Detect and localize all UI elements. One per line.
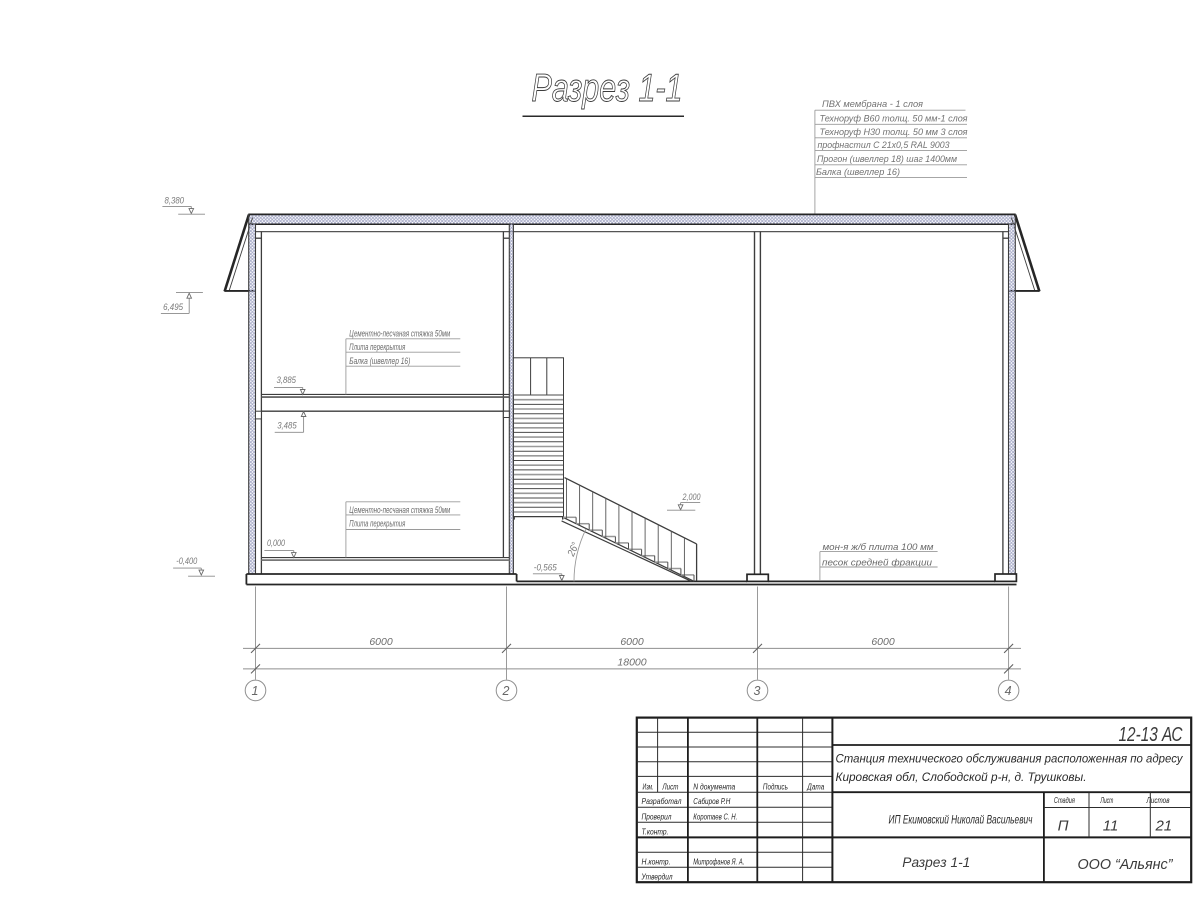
svg-text:Разрез 1-1: Разрез 1-1: [902, 854, 970, 870]
svg-text:3,885: 3,885: [277, 375, 297, 385]
svg-text:Техноруф Н30 толщ. 50 мм 3 сло: Техноруф Н30 толщ. 50 мм 3 слоя: [820, 127, 968, 138]
svg-text:18000: 18000: [617, 657, 646, 669]
svg-text:8,380: 8,380: [165, 195, 185, 205]
svg-text:6000: 6000: [871, 636, 895, 648]
svg-text:Плита перекрытия: Плита перекрытия: [349, 518, 405, 528]
svg-text:Н.контр.: Н.контр.: [642, 856, 671, 866]
svg-text:6,495: 6,495: [163, 302, 184, 312]
svg-text:Балка (швеллер 16): Балка (швеллер 16): [349, 356, 410, 366]
svg-text:1: 1: [252, 684, 259, 698]
svg-text:Подпись: Подпись: [763, 782, 788, 791]
svg-text:Плита перекрытия: Плита перекрытия: [349, 342, 405, 352]
svg-text:N документа: N документа: [693, 782, 735, 791]
svg-text:Прогон (швеллер 18) шаг 1400мм: Прогон (швеллер 18) шаг 1400мм: [817, 154, 957, 165]
svg-text:Т.контр.: Т.контр.: [642, 827, 669, 837]
svg-text:Изм.: Изм.: [643, 782, 654, 791]
svg-text:ПВХ мембрана - 1 слоя: ПВХ мембрана - 1 слоя: [822, 99, 923, 110]
svg-text:Листов: Листов: [1146, 796, 1170, 805]
svg-text:2,000: 2,000: [682, 492, 701, 502]
svg-text:ООО “Альянс”: ООО “Альянс”: [1078, 856, 1174, 873]
svg-text:Лист: Лист: [662, 782, 679, 791]
svg-text:Станция технического обслужива: Станция технического обслуживания распол…: [836, 754, 1184, 766]
svg-text:4: 4: [1005, 684, 1012, 698]
svg-text:Дата: Дата: [806, 782, 824, 791]
svg-text:Коротаев С. Н.: Коротаев С. Н.: [693, 811, 737, 821]
svg-text:3,485: 3,485: [277, 420, 297, 430]
svg-text:Цементно-песчаная стяжка 50мм: Цементно-песчаная стяжка 50мм: [349, 505, 450, 515]
svg-text:Митрофанов Я. А.: Митрофанов Я. А.: [693, 856, 744, 866]
svg-text:Балка (швеллер 16): Балка (швеллер 16): [816, 167, 900, 178]
svg-text:0,000: 0,000: [267, 538, 285, 548]
svg-text:Цементно-песчаная стяжка 50мм: Цементно-песчаная стяжка 50мм: [349, 329, 450, 339]
svg-text:Кировская обл, Слободской р-н,: Кировская обл, Слободской р-н, д. Трушко…: [836, 772, 1087, 784]
svg-text:П: П: [1058, 818, 1069, 835]
svg-text:11: 11: [1103, 818, 1119, 835]
svg-text:Разрез 1-1: Разрез 1-1: [532, 67, 683, 110]
svg-text:Стадия: Стадия: [1054, 796, 1076, 805]
svg-text:6000: 6000: [620, 636, 644, 648]
svg-text:Сабиров Р.Н: Сабиров Р.Н: [693, 796, 731, 806]
svg-text:Утвердил: Утвердил: [641, 871, 673, 881]
svg-text:-0,565: -0,565: [534, 563, 558, 573]
svg-text:ИП Екимовский Николай Васильев: ИП Екимовский Николай Васильевич: [889, 814, 1033, 826]
svg-text:2: 2: [502, 684, 510, 698]
svg-text:21: 21: [1154, 818, 1172, 835]
svg-text:Техноруф В60 толщ. 50 мм-1 сло: Техноруф В60 толщ. 50 мм-1 слоя: [820, 114, 968, 125]
svg-text:Проверил: Проверил: [642, 811, 672, 821]
svg-text:Лист: Лист: [1100, 796, 1114, 805]
svg-text:-0,400: -0,400: [176, 556, 197, 566]
svg-text:6000: 6000: [369, 636, 393, 648]
svg-text:Разработал: Разработал: [642, 796, 682, 806]
svg-text:12-13 АС: 12-13 АС: [1119, 724, 1183, 746]
svg-text:3: 3: [754, 684, 761, 698]
svg-text:профнастил С 21х0,5 RAL 9003: профнастил С 21х0,5 RAL 9003: [818, 140, 951, 151]
